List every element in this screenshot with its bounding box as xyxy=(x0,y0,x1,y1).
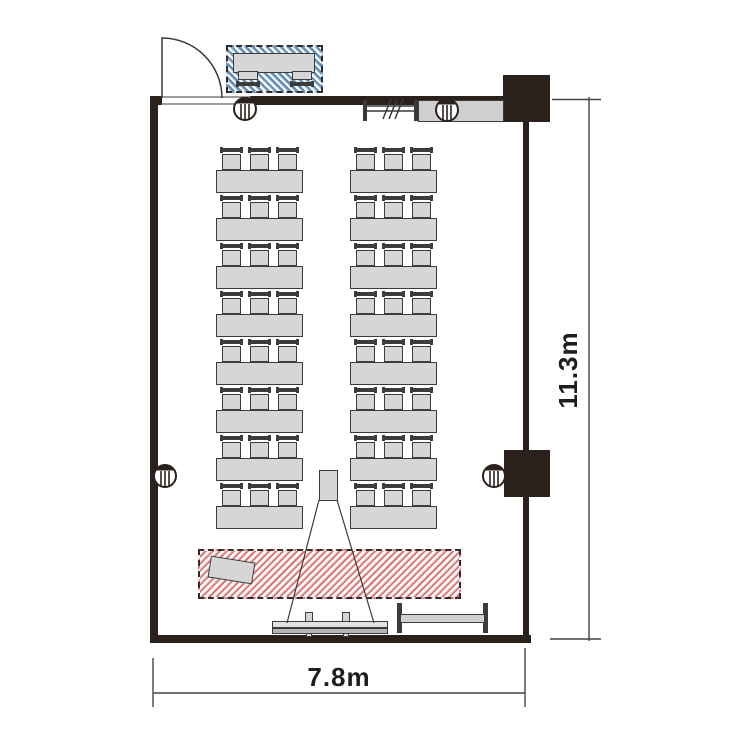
door-swing-icon xyxy=(162,38,222,98)
pillar-icon xyxy=(154,465,176,487)
pillar-icons xyxy=(154,98,505,487)
partition-track-icon xyxy=(363,99,418,121)
floor-plan: 7.8m 11.3m xyxy=(0,0,750,750)
pillar-icon xyxy=(436,99,458,121)
projector-beam xyxy=(287,500,374,623)
linework-layer xyxy=(0,0,750,750)
width-dimension-label: 7.8m xyxy=(153,662,525,693)
height-dimension-label: 11.3m xyxy=(501,300,635,440)
pillar-icon xyxy=(483,465,505,487)
pillar-icon xyxy=(234,98,256,120)
